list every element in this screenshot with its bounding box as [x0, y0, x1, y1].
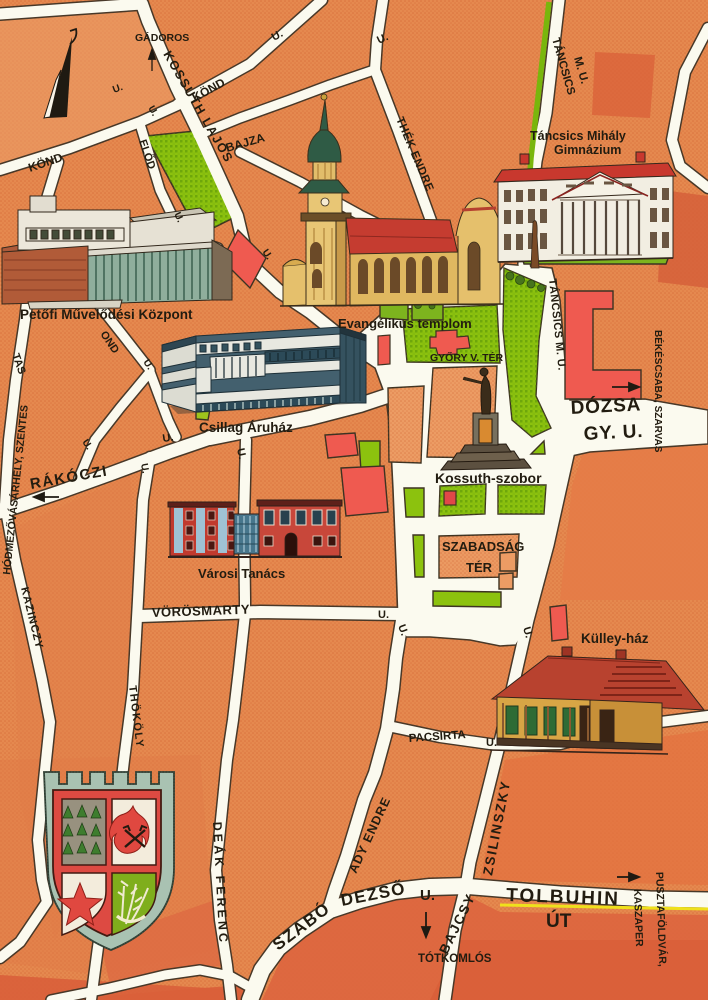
svg-text:U.: U.: [378, 609, 389, 621]
svg-text:U.: U.: [162, 432, 175, 445]
svg-text:TOLBUHIN: TOLBUHIN: [506, 885, 620, 910]
svg-text:Városi Tanács: Városi Tanács: [198, 566, 285, 581]
svg-text:BÉKÉSCSABA, SZARVAS: BÉKÉSCSABA, SZARVAS: [652, 330, 665, 453]
svg-text:Gimnázium: Gimnázium: [554, 143, 621, 157]
svg-text:GÁDOROS: GÁDOROS: [135, 31, 189, 44]
svg-text:Petőfi Művelődési Központ: Petőfi Művelődési Központ: [20, 307, 193, 322]
svg-text:TÉR: TÉR: [466, 560, 493, 575]
svg-text:Evangélikus templom: Evangélikus templom: [338, 316, 472, 331]
svg-text:ÚT: ÚT: [546, 910, 572, 932]
svg-text:GYŐRY V. TÉR: GYŐRY V. TÉR: [430, 351, 504, 364]
svg-text:SZABADSÁG: SZABADSÁG: [442, 539, 524, 554]
svg-text:Kossuth-szobor: Kossuth-szobor: [435, 470, 542, 486]
svg-text:TÓTKOMLÓS: TÓTKOMLÓS: [418, 952, 492, 965]
svg-text:GY. U.: GY. U.: [583, 421, 644, 445]
svg-text:Táncsics Mihály: Táncsics Mihály: [530, 129, 626, 143]
svg-text:DÓZSA: DÓZSA: [570, 393, 642, 419]
svg-text:U.: U.: [420, 887, 435, 904]
svg-text:U.: U.: [486, 737, 497, 749]
svg-text:KASZAPER: KASZAPER: [631, 889, 645, 948]
svg-text:Külley-ház: Külley-ház: [581, 631, 649, 646]
svg-text:Csillag Áruház: Csillag Áruház: [199, 420, 293, 435]
